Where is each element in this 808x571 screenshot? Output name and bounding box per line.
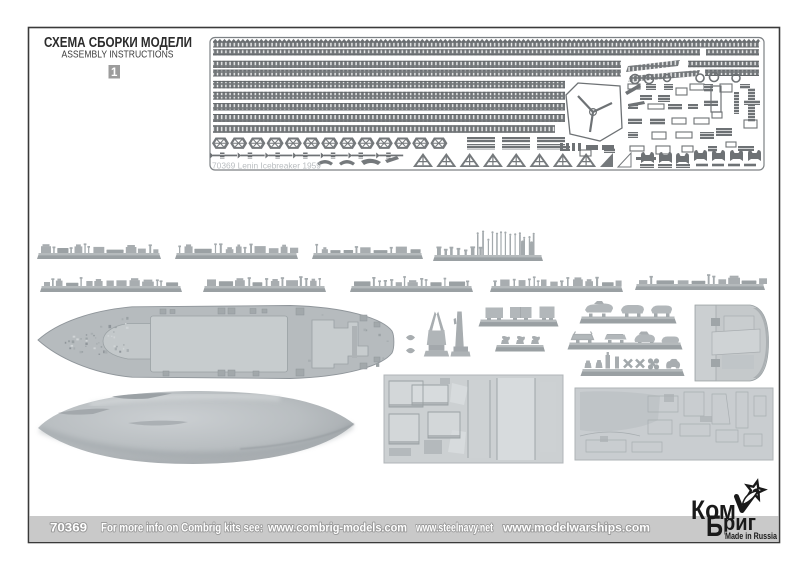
svg-text:70369: 70369 [50,521,87,535]
svg-text:70369 Lenin Icebreaker 1959: 70369 Lenin Icebreaker 1959 [212,161,321,171]
svg-text:For more info on Combrig kits: For more info on Combrig kits see: [101,521,263,535]
svg-text:Made in Russia: Made in Russia [725,531,777,542]
svg-text:1: 1 [111,67,118,79]
svg-text:ASSEMBLY INSTRUCTIONS: ASSEMBLY INSTRUCTIONS [62,50,174,61]
svg-text:www.combrig-models.com: www.combrig-models.com [267,521,407,535]
svg-text:www.steelnavy.net: www.steelnavy.net [415,521,493,535]
svg-text:www.modelwarships.com: www.modelwarships.com [502,521,650,535]
svg-text:Б: Б [706,510,723,543]
